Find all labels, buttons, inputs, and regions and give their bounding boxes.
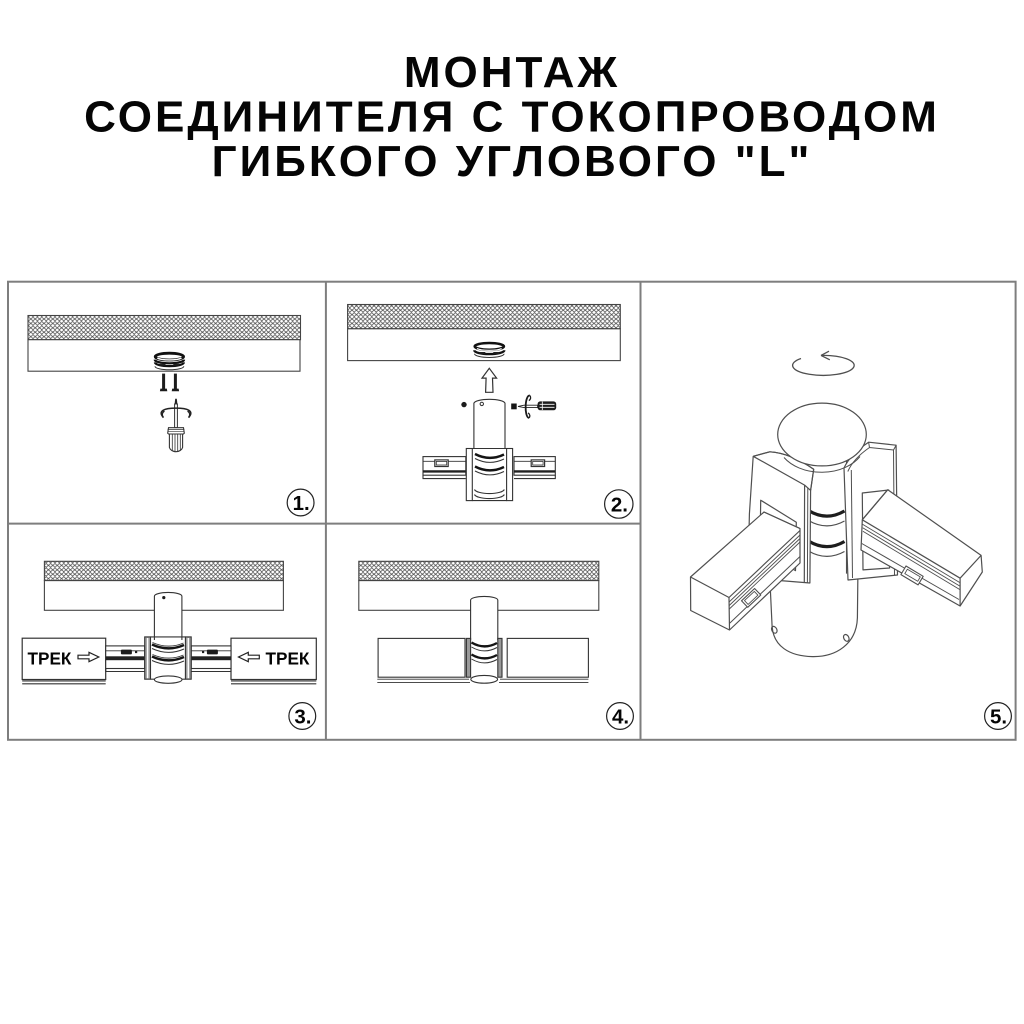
svg-text:3.: 3.: [294, 706, 311, 729]
svg-text:ГИБКОГО УГЛОВОГО "L": ГИБКОГО УГЛОВОГО "L": [212, 137, 813, 186]
svg-text:СОЕДИНИТЕЛЯ С ТОКОПРОВОДОМ: СОЕДИНИТЕЛЯ С ТОКОПРОВОДОМ: [84, 93, 940, 142]
svg-text:5.: 5.: [990, 706, 1007, 729]
svg-text:1.: 1.: [293, 492, 310, 515]
svg-text:ТРЕК: ТРЕК: [28, 648, 72, 668]
svg-text:МОНТАЖ: МОНТАЖ: [404, 48, 620, 97]
svg-text:2.: 2.: [611, 494, 628, 517]
svg-text:ТРЕК: ТРЕК: [266, 648, 310, 668]
svg-text:4.: 4.: [612, 706, 629, 729]
